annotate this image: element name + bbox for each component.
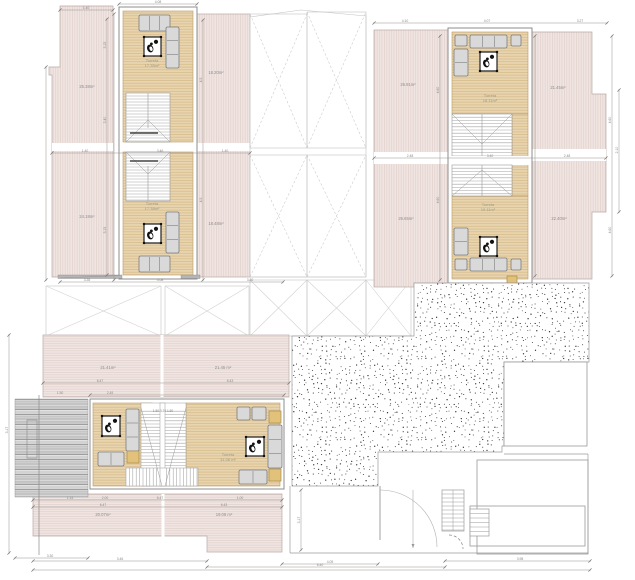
- svg-text:1.40: 1.40: [222, 149, 229, 153]
- svg-text:20.07m²: 20.07m²: [95, 512, 111, 517]
- svg-text:5.15: 5.15: [103, 42, 107, 49]
- svg-text:4.10: 4.10: [402, 19, 409, 23]
- svg-text:4.08: 4.08: [155, 0, 162, 4]
- svg-text:3.35: 3.35: [84, 278, 91, 282]
- svg-text:6.43: 6.43: [221, 503, 228, 507]
- svg-text:5.15: 5.15: [103, 227, 107, 234]
- svg-text:18.20m²: 18.20m²: [208, 70, 224, 75]
- svg-text:4.60: 4.60: [608, 227, 612, 234]
- svg-text:3.30: 3.30: [47, 554, 54, 558]
- svg-text:22.40m²: 22.40m²: [551, 216, 567, 221]
- svg-text:4.5: 4.5: [199, 198, 203, 203]
- svg-text:6.47: 6.47: [100, 503, 107, 507]
- svg-text:18.48m²: 18.48m²: [208, 221, 224, 226]
- svg-text:19.11m²: 19.11m²: [481, 207, 496, 212]
- svg-text:21.45m²: 21.45m²: [550, 85, 566, 90]
- svg-text:6.47: 6.47: [97, 379, 104, 383]
- svg-text:3.17: 3.17: [297, 517, 301, 524]
- svg-text:2.48: 2.48: [564, 154, 571, 158]
- svg-text:26.91m²: 26.91m²: [400, 82, 416, 87]
- svg-text:4.07: 4.07: [484, 19, 491, 23]
- svg-text:21.45 m²: 21.45 m²: [215, 365, 232, 370]
- svg-text:4.5: 4.5: [199, 78, 203, 83]
- svg-text:4.05: 4.05: [327, 560, 334, 564]
- svg-text:6.43: 6.43: [227, 379, 234, 383]
- svg-text:3.40: 3.40: [103, 117, 107, 124]
- svg-text:1.40: 1.40: [83, 6, 90, 10]
- svg-text:2.48: 2.48: [407, 154, 414, 158]
- svg-text:17.35m²: 17.35m²: [145, 63, 160, 68]
- svg-text:1.50 3.20 1.50: 1.50 3.20 1.50: [153, 409, 174, 413]
- svg-text:19.06 m²: 19.06 m²: [216, 512, 233, 517]
- svg-text:4.08: 4.08: [157, 278, 164, 282]
- svg-text:21.41m²: 21.41m²: [100, 365, 116, 370]
- svg-text:3.27: 3.27: [577, 19, 584, 23]
- svg-text:4.60: 4.60: [436, 197, 440, 204]
- svg-text:26.65m²: 26.65m²: [398, 216, 414, 221]
- svg-text:25.38m²: 25.38m²: [79, 84, 95, 89]
- svg-text:2.10: 2.10: [615, 147, 619, 154]
- svg-text:3.98: 3.98: [517, 557, 524, 561]
- svg-text:6.40: 6.40: [317, 563, 324, 567]
- svg-text:18.11m²: 18.11m²: [483, 98, 498, 103]
- svg-text:24.18m²: 24.18m²: [79, 214, 95, 219]
- svg-text:2.00: 2.00: [102, 496, 109, 500]
- svg-text:3.40: 3.40: [487, 154, 494, 158]
- svg-text:3.46: 3.46: [117, 557, 124, 561]
- svg-text:3.17: 3.17: [5, 427, 9, 434]
- svg-text:3.46: 3.46: [157, 149, 164, 153]
- svg-text:1.40: 1.40: [82, 149, 89, 153]
- svg-text:1.00: 1.00: [237, 496, 244, 500]
- svg-text:3.80: 3.80: [247, 278, 254, 282]
- svg-text:1.50: 1.50: [57, 391, 64, 395]
- svg-text:31.06 m²: 31.06 m²: [220, 457, 236, 462]
- svg-text:2.45: 2.45: [107, 391, 114, 395]
- svg-text:4.60: 4.60: [608, 117, 612, 124]
- svg-text:4.60: 4.60: [436, 87, 440, 94]
- svg-text:6.47: 6.47: [157, 496, 164, 500]
- svg-text:17.38m²: 17.38m²: [145, 206, 160, 211]
- svg-text:1.14: 1.14: [67, 496, 74, 500]
